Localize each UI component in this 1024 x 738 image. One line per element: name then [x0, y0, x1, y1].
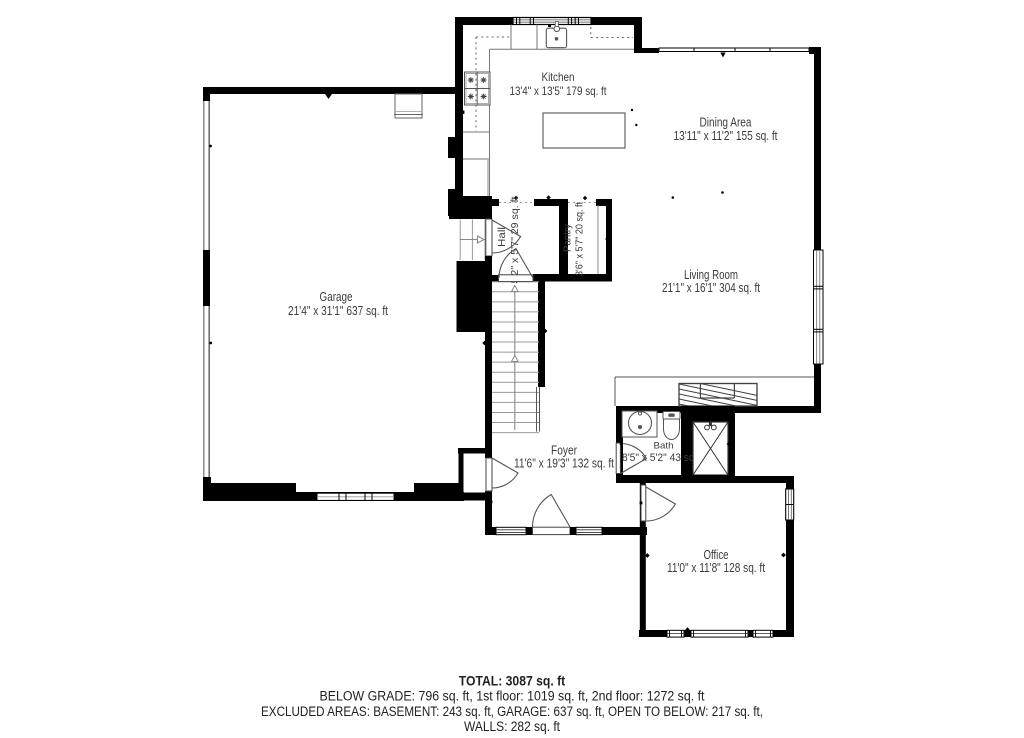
svg-text:11'0" x 11'8" 128 sq. ft: 11'0" x 11'8" 128 sq. ft — [667, 560, 765, 575]
svg-text:Kitchen: Kitchen — [542, 70, 575, 84]
svg-text:WALLS: 282 sq. ft: WALLS: 282 sq. ft — [464, 719, 560, 734]
svg-text:TOTAL: 3087 sq. ft: TOTAL: 3087 sq. ft — [459, 673, 566, 688]
svg-text:BELOW GRADE: 796 sq. ft, 1st f: BELOW GRADE: 796 sq. ft, 1st floor: 1019… — [320, 688, 705, 703]
svg-text:5'2" x 5'7" 29 sq. ft: 5'2" x 5'7" 29 sq. ft — [510, 196, 521, 283]
svg-text:EXCLUDED AREAS: BASEMENT: 243: EXCLUDED AREAS: BASEMENT: 243 sq. ft, GA… — [261, 704, 763, 719]
svg-text:21'1" x 16'1" 304 sq. ft: 21'1" x 16'1" 304 sq. ft — [662, 280, 760, 295]
svg-text:13'4" x 13'5" 179 sq. ft: 13'4" x 13'5" 179 sq. ft — [510, 84, 608, 98]
svg-text:13'11" x 11'2" 155 sq. ft: 13'11" x 11'2" 155 sq. ft — [674, 128, 778, 143]
svg-text:3'6" x 5'7" 20 sq. ft: 3'6" x 5'7" 20 sq. ft — [575, 202, 586, 276]
svg-text:Bath: Bath — [654, 440, 674, 451]
svg-text:Garage: Garage — [320, 289, 353, 304]
svg-text:21'4" x 31'1" 637 sq. ft: 21'4" x 31'1" 637 sq. ft — [288, 303, 388, 318]
svg-text:Hall: Hall — [497, 227, 508, 247]
svg-text:Pantry: Pantry — [562, 224, 573, 252]
svg-text:11'6" x 19'3" 132 sq. ft: 11'6" x 19'3" 132 sq. ft — [514, 456, 614, 471]
